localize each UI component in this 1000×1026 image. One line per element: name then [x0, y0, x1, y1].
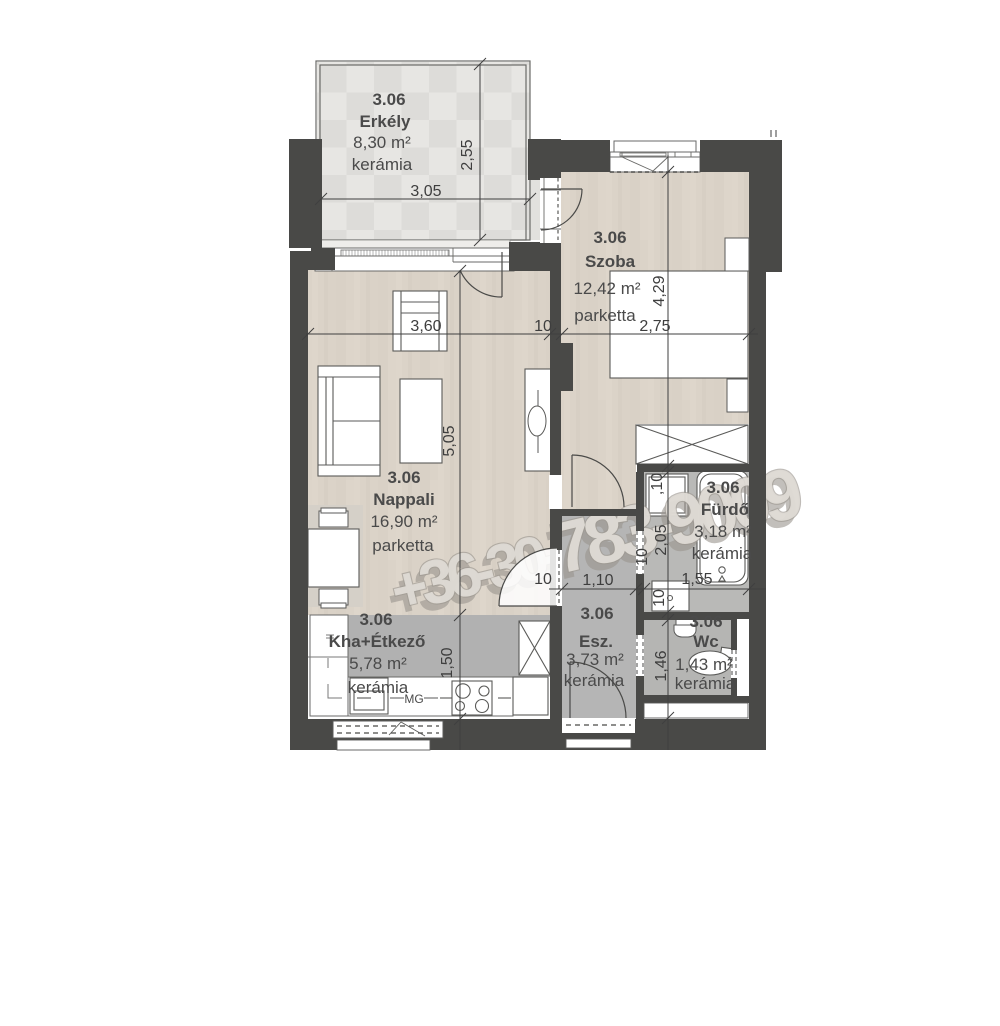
- svg-text:Nappali: Nappali: [373, 490, 434, 509]
- svg-text:3.06: 3.06: [387, 468, 420, 487]
- svg-text:1,10: 1,10: [582, 572, 613, 589]
- svg-text:Wc: Wc: [693, 632, 719, 651]
- svg-text:Erkély: Erkély: [359, 112, 411, 131]
- svg-text:kerámia: kerámia: [352, 155, 413, 174]
- svg-text:8,30 m²: 8,30 m²: [353, 133, 411, 152]
- svg-text:,10: ,10: [649, 473, 666, 495]
- svg-text:3,05: 3,05: [410, 183, 441, 200]
- svg-text:3.06: 3.06: [593, 228, 626, 247]
- svg-text:3.06: 3.06: [706, 478, 739, 497]
- svg-text:1,46: 1,46: [653, 650, 670, 681]
- svg-text:Fürdő: Fürdő: [701, 500, 749, 519]
- svg-text:3.06: 3.06: [689, 612, 722, 631]
- svg-text:1,43 m²: 1,43 m²: [675, 655, 733, 674]
- svg-text:kerámia: kerámia: [675, 674, 736, 693]
- svg-text:5,05: 5,05: [441, 425, 458, 456]
- svg-text:10: 10: [651, 589, 668, 607]
- svg-text:12,42 m²: 12,42 m²: [573, 279, 640, 298]
- svg-text:10: 10: [534, 571, 552, 588]
- svg-text:2,05: 2,05: [653, 524, 670, 555]
- svg-text:Kha+Étkező: Kha+Étkező: [329, 632, 426, 651]
- svg-text:3.06: 3.06: [372, 90, 405, 109]
- svg-text:16,90 m²: 16,90 m²: [370, 512, 437, 531]
- svg-text:3.06: 3.06: [359, 610, 392, 629]
- svg-text:5,78 m²: 5,78 m²: [349, 654, 407, 673]
- svg-text:kerámia: kerámia: [564, 671, 625, 690]
- svg-text:2,75: 2,75: [639, 318, 670, 335]
- svg-text:3,60: 3,60: [410, 318, 441, 335]
- svg-text:1,55: 1,55: [681, 571, 712, 588]
- svg-text:parketta: parketta: [574, 306, 636, 325]
- svg-text:10: 10: [634, 548, 651, 566]
- svg-text:kerámia: kerámia: [692, 544, 753, 563]
- svg-text:kerámia: kerámia: [348, 678, 409, 697]
- svg-text:Szoba: Szoba: [585, 252, 636, 271]
- svg-text:3,18 m²: 3,18 m²: [694, 522, 752, 541]
- svg-text:Esz.: Esz.: [579, 632, 613, 651]
- svg-text:4,29: 4,29: [651, 275, 668, 306]
- svg-text:3.06: 3.06: [580, 604, 613, 623]
- svg-text:2,55: 2,55: [459, 139, 476, 170]
- svg-text:10: 10: [534, 318, 552, 335]
- svg-text:3,73 m²: 3,73 m²: [566, 650, 624, 669]
- svg-text:parketta: parketta: [372, 536, 434, 555]
- svg-text:1,50: 1,50: [439, 647, 456, 678]
